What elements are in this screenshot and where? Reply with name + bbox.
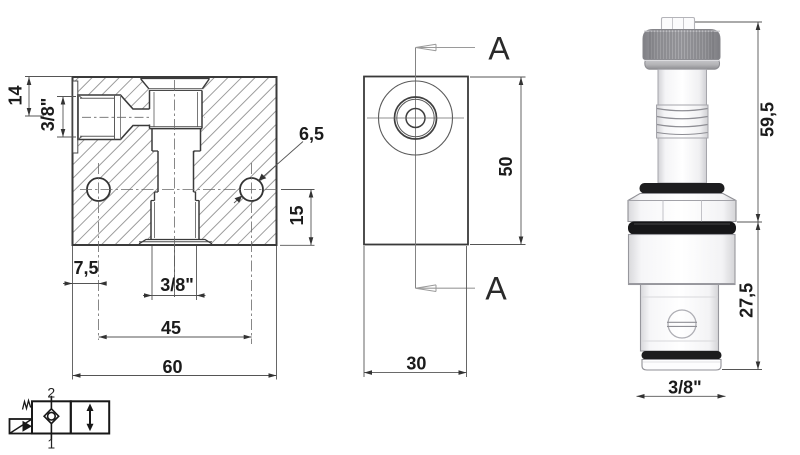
svg-text:45: 45 [161, 318, 181, 338]
svg-text:3/8": 3/8" [38, 98, 58, 132]
svg-text:2: 2 [47, 385, 55, 401]
svg-text:3/8": 3/8" [668, 378, 702, 398]
svg-text:60: 60 [162, 357, 182, 377]
svg-text:7,5: 7,5 [73, 258, 98, 278]
svg-text:14: 14 [6, 85, 26, 105]
svg-text:A: A [488, 31, 510, 67]
svg-text:1: 1 [47, 436, 55, 451]
svg-text:50: 50 [496, 156, 516, 176]
svg-text:3/8": 3/8" [160, 275, 194, 295]
svg-text:A: A [485, 271, 507, 307]
svg-text:59,5: 59,5 [758, 102, 778, 137]
svg-text:27,5: 27,5 [737, 283, 757, 318]
svg-text:30: 30 [406, 354, 426, 374]
svg-text:6,5: 6,5 [299, 124, 324, 144]
svg-text:15: 15 [287, 205, 307, 225]
